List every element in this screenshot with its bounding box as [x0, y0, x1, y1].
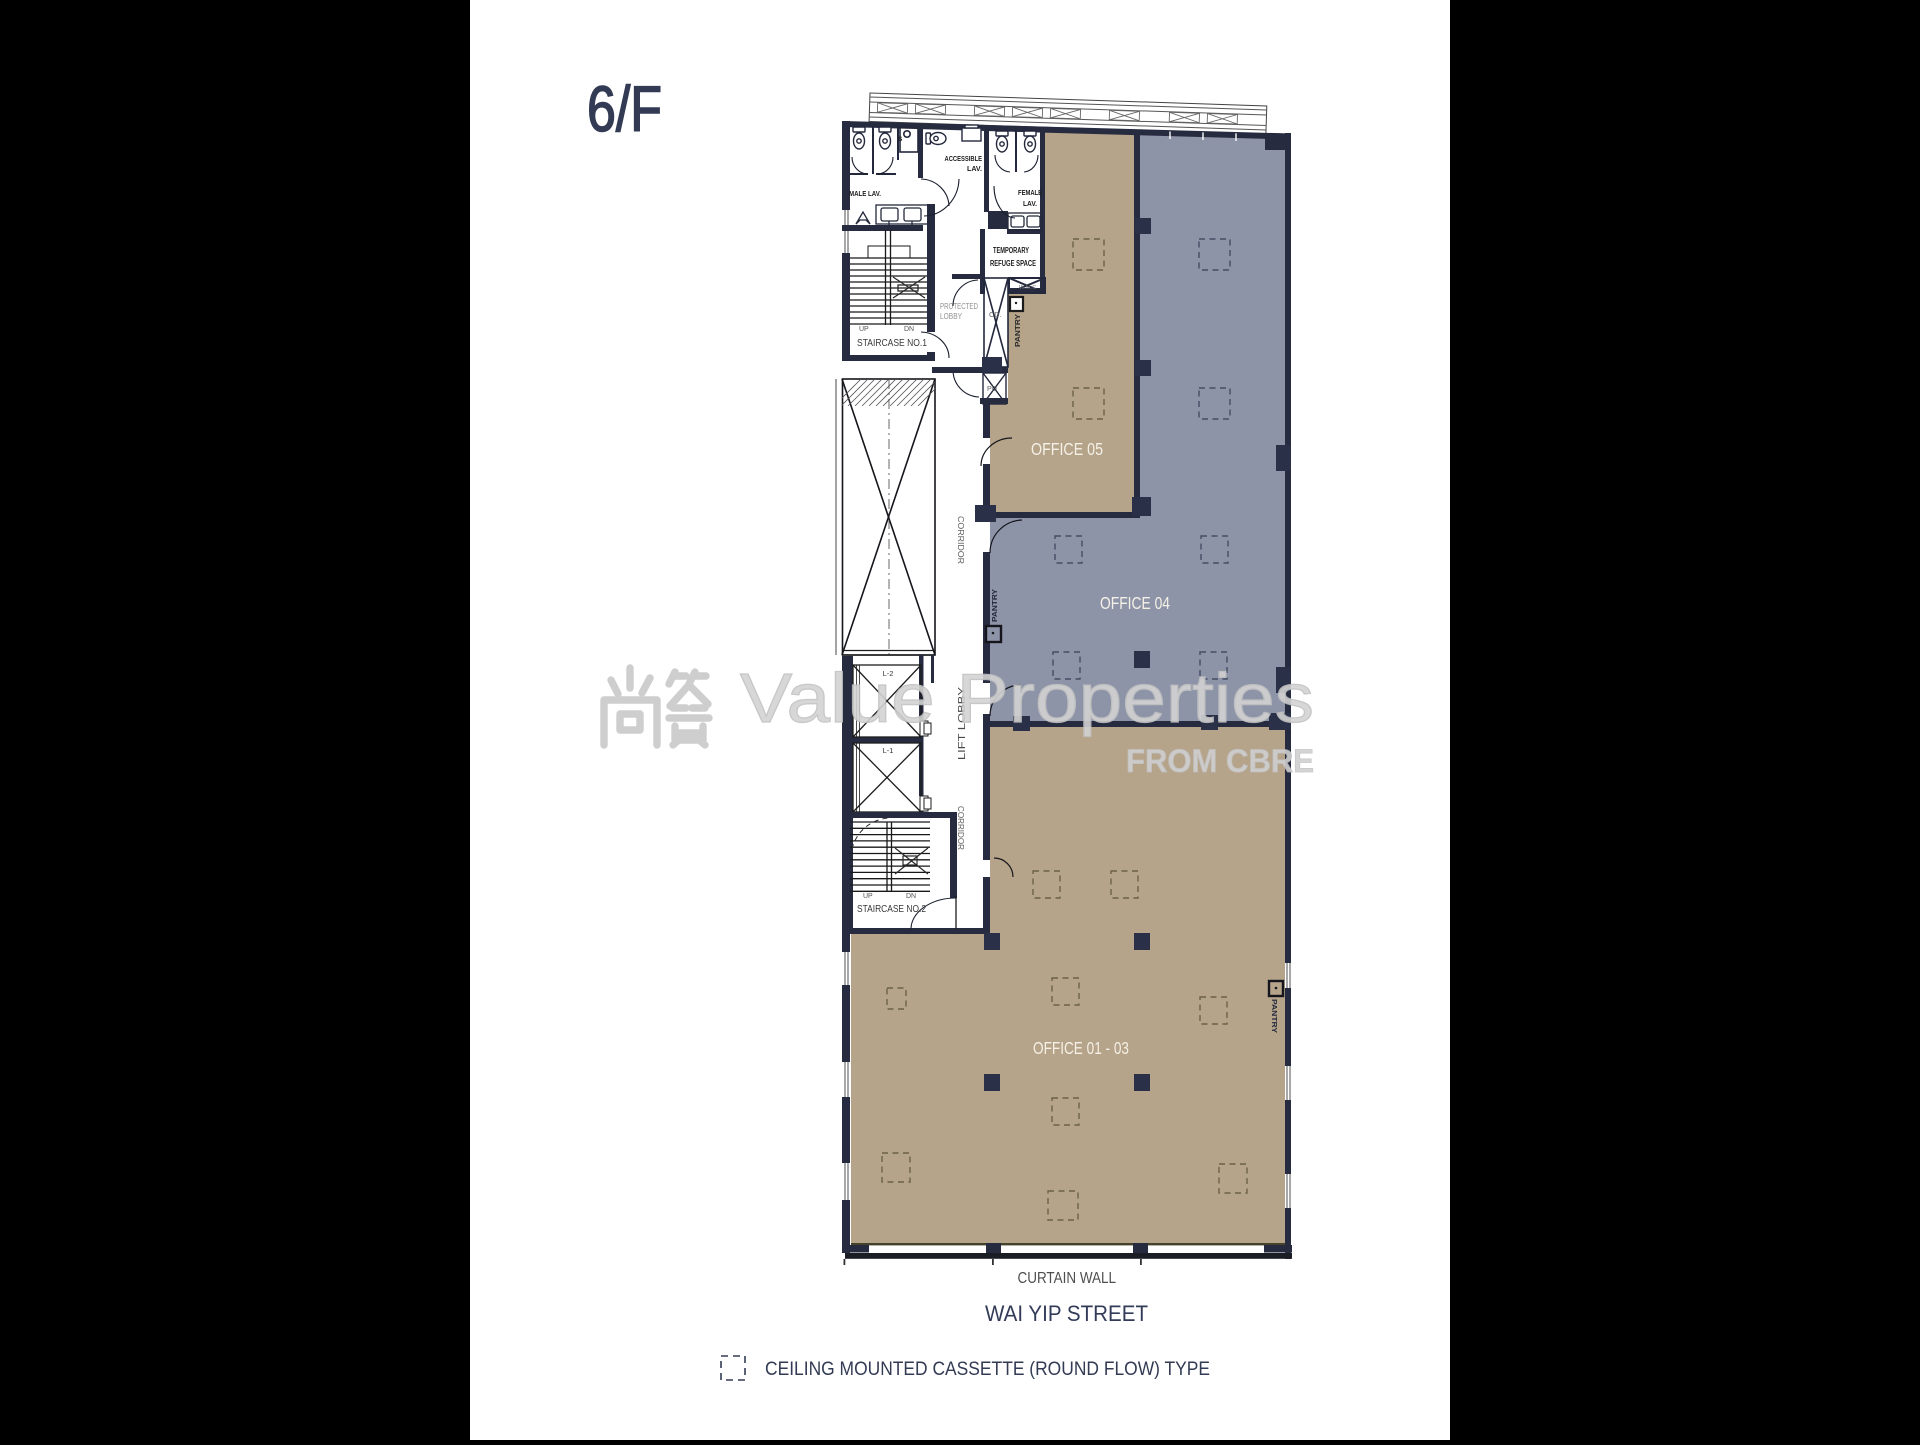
svg-text:CURTAIN WALL: CURTAIN WALL — [1018, 1270, 1117, 1287]
svg-text:W.M.C: W.M.C — [1019, 285, 1036, 291]
svg-text:UP: UP — [859, 326, 869, 333]
svg-text:PD: PD — [987, 384, 997, 393]
svg-text:6/F: 6/F — [587, 73, 662, 145]
svg-text:LAV.: LAV. — [967, 164, 982, 173]
svg-text:MALE LAV.: MALE LAV. — [849, 189, 881, 198]
svg-text:FEMALE: FEMALE — [1018, 188, 1042, 197]
svg-text:L-1: L-1 — [883, 746, 894, 755]
svg-text:OFFICE 05: OFFICE 05 — [1031, 439, 1103, 459]
svg-text:OFFICE 01 - 03: OFFICE 01 - 03 — [1033, 1038, 1129, 1058]
svg-text:WAI YIP STREET: WAI YIP STREET — [985, 1301, 1148, 1326]
svg-text:REFUGE SPACE: REFUGE SPACE — [990, 259, 1036, 268]
svg-text:S: S — [898, 136, 903, 143]
svg-text:PANTRY: PANTRY — [1270, 999, 1279, 1033]
svg-text:ACCESSIBLE: ACCESSIBLE — [945, 154, 983, 163]
svg-text:DN: DN — [904, 326, 914, 333]
svg-text:Value Properties: Value Properties — [740, 659, 1314, 737]
svg-text:STAIRCASE NO.2: STAIRCASE NO.2 — [857, 904, 926, 915]
svg-text:LOBBY: LOBBY — [940, 312, 963, 321]
svg-text:PROTECTED: PROTECTED — [940, 302, 978, 311]
svg-text:LAV.: LAV. — [1023, 199, 1037, 208]
svg-text:CORRIDOR: CORRIDOR — [956, 806, 965, 850]
svg-text:CORRIDOR: CORRIDOR — [956, 516, 965, 564]
svg-text:PANTRY: PANTRY — [990, 589, 999, 622]
svg-text:UP: UP — [863, 893, 873, 900]
svg-text:STAIRCASE NO.1: STAIRCASE NO.1 — [857, 338, 927, 349]
svg-text:OFFICE 04: OFFICE 04 — [1100, 593, 1170, 613]
svg-text:TEMPORARY: TEMPORARY — [993, 246, 1030, 255]
svg-text:CD.: CD. — [989, 310, 1001, 319]
svg-text:CEILING MOUNTED CASSETTE (ROUN: CEILING MOUNTED CASSETTE (ROUND FLOW) TY… — [765, 1359, 1210, 1380]
svg-text:PANTRY: PANTRY — [1013, 314, 1022, 347]
svg-text:DN: DN — [906, 893, 916, 900]
svg-text:FROM CBRE: FROM CBRE — [1126, 743, 1314, 779]
